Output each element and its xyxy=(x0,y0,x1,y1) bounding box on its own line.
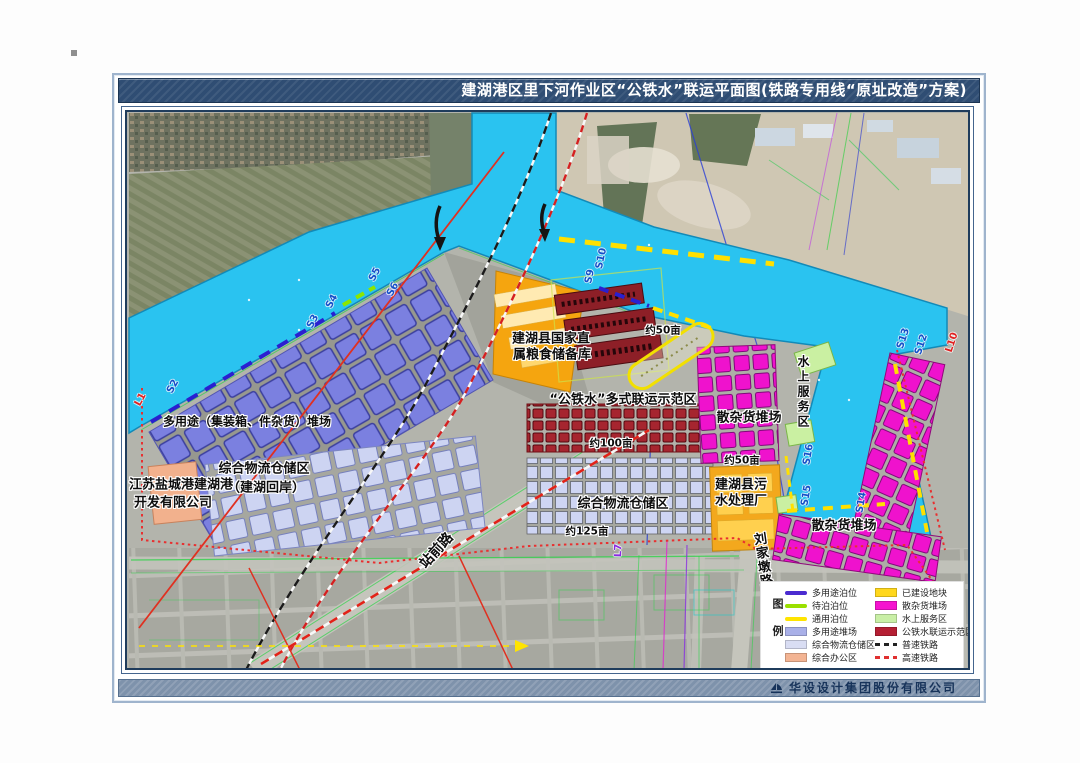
company-logo-icon xyxy=(770,682,783,695)
legend-item: 多用途堆场 xyxy=(785,626,875,638)
legend-item: 综合物流仓储区 xyxy=(785,639,875,651)
label-area-125mu: 约125亩 xyxy=(566,524,609,539)
dirt-patch xyxy=(587,136,629,184)
label-area-50mu-right: 约50亩 xyxy=(724,453,760,468)
label-logistics-huian-2: （建湖回岸） xyxy=(227,477,305,496)
label-area-50mu-top: 约50亩 xyxy=(645,323,681,338)
tree-spit xyxy=(429,113,472,196)
drawing-title: 建湖港区里下河作业区“公铁水”联运平面图(铁路专用线“原址改造”方案) xyxy=(118,78,980,103)
warehouse-roof xyxy=(897,138,939,158)
legend-swatch-multi-use-berth xyxy=(785,591,807,595)
legend-item: 多用途泊位 xyxy=(785,587,875,599)
legend-item: 高速铁路 xyxy=(875,652,970,664)
label-grain-depot-2: 属粮食储备库 xyxy=(513,344,591,363)
legend-item: 已建设地块 xyxy=(875,587,970,599)
warehouse-roof xyxy=(867,120,893,132)
page-corner-mark xyxy=(71,50,77,56)
zone-bulk-yard-upper xyxy=(697,345,779,464)
legend-swatch-built-plot xyxy=(875,588,897,597)
legend-item: 综合办公区 xyxy=(785,652,875,664)
label-port-company-1: 江苏盐城港建湖港 xyxy=(129,474,233,493)
label-water-service-area: 水上服务区 xyxy=(795,355,812,430)
legend-column-right: 已建设地块 散杂货堆场 水上服务区 公铁水联运示范区 普速铁路 xyxy=(875,586,970,664)
legend-swatch-general-berth xyxy=(785,617,807,621)
legend-swatch-bulk-yard xyxy=(875,601,897,610)
warehouse-roof xyxy=(931,168,961,184)
label-multi-use-yard: 多用途（集装箱、件杂货）堆场 xyxy=(163,413,331,430)
label-bulk-yard-lower: 散杂货堆场 xyxy=(811,515,876,534)
legend-item: 待泊泊位 xyxy=(785,600,875,612)
label-logistics-center: 综合物流仓储区 xyxy=(577,493,668,512)
legend-swatch-water-service xyxy=(875,614,897,623)
legend-column-left: 多用途泊位 待泊泊位 通用泊位 多用途堆场 综合物流仓储区 xyxy=(785,586,875,664)
legend-item: 通用泊位 xyxy=(785,613,875,625)
legend: 图例 多用途泊位 待泊泊位 通用泊位 xyxy=(761,582,963,668)
legend-item: 散杂货堆场 xyxy=(875,600,970,612)
legend-title: 图例 xyxy=(769,598,785,664)
warehouse-roof xyxy=(803,124,833,138)
legend-swatch-logistics-zone xyxy=(785,640,807,649)
line-label-l7: L7 xyxy=(613,544,624,558)
legend-item: 公铁水联运示范区 xyxy=(875,626,970,638)
warehouse-roof xyxy=(755,128,795,146)
legend-swatch-waiting-berth xyxy=(785,604,807,608)
page: 建湖港区里下河作业区“公铁水”联运平面图(铁路专用线“原址改造”方案) xyxy=(0,0,1080,763)
label-area-100mu: 约100亩 xyxy=(590,436,633,451)
legend-swatch-highspeed-rail xyxy=(875,656,897,659)
company-name: 华设设计集团股份有限公司 xyxy=(789,680,957,696)
sheet-footer: 华设设计集团股份有限公司 xyxy=(118,679,980,697)
legend-item: 普速铁路 xyxy=(875,639,970,651)
label-bulk-yard-upper: 散杂货堆场 xyxy=(716,407,781,426)
legend-swatch-conventional-rail xyxy=(875,643,897,646)
legend-item: 水上服务区 xyxy=(875,613,970,625)
label-sewage-2: 水处理厂 xyxy=(715,490,767,509)
label-port-company-2: 开发有限公司 xyxy=(134,492,212,511)
legend-swatch-multi-use-yard xyxy=(785,627,807,636)
label-demo-zone: “公铁水”多式联运示范区 xyxy=(549,389,696,408)
legend-swatch-demo-zone xyxy=(875,627,897,636)
map-frame: 多用途（集装箱、件杂货）堆场 综合物流仓储区 （建湖回岸） 江苏盐城港建湖港 开… xyxy=(121,106,974,674)
legend-swatch-office-zone xyxy=(785,653,807,662)
map-canvas: 多用途（集装箱、件杂货）堆场 综合物流仓储区 （建湖回岸） 江苏盐城港建湖港 开… xyxy=(125,110,970,670)
